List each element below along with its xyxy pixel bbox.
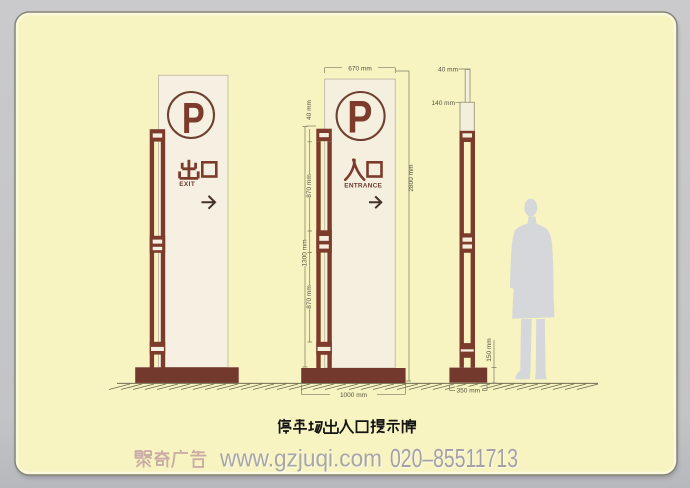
svg-text:1000 mm: 1000 mm (340, 392, 367, 399)
svg-text:150 mm: 150 mm (486, 338, 493, 361)
svg-text:2800 mm: 2800 mm (408, 164, 415, 191)
svg-text:P: P (182, 94, 205, 143)
svg-text:40 mm: 40 mm (438, 67, 458, 74)
svg-text:870 mm: 870 mm (306, 174, 313, 197)
svg-text:350 mm: 350 mm (457, 388, 480, 395)
svg-text:670 mm: 670 mm (348, 65, 371, 72)
svg-text:1300 mm: 1300 mm (302, 239, 309, 266)
svg-text:P: P (347, 91, 372, 142)
svg-text:ENTRANCE: ENTRANCE (344, 183, 382, 190)
svg-text:40 mm: 40 mm (306, 100, 313, 120)
svg-text:www.gzjuqi.com: www.gzjuqi.com (219, 445, 382, 472)
svg-text:020–85511713: 020–85511713 (390, 443, 518, 473)
svg-text:EXIT: EXIT (179, 181, 195, 188)
svg-text:140 mm: 140 mm (432, 100, 455, 107)
svg-text:870 mm: 870 mm (306, 285, 313, 308)
